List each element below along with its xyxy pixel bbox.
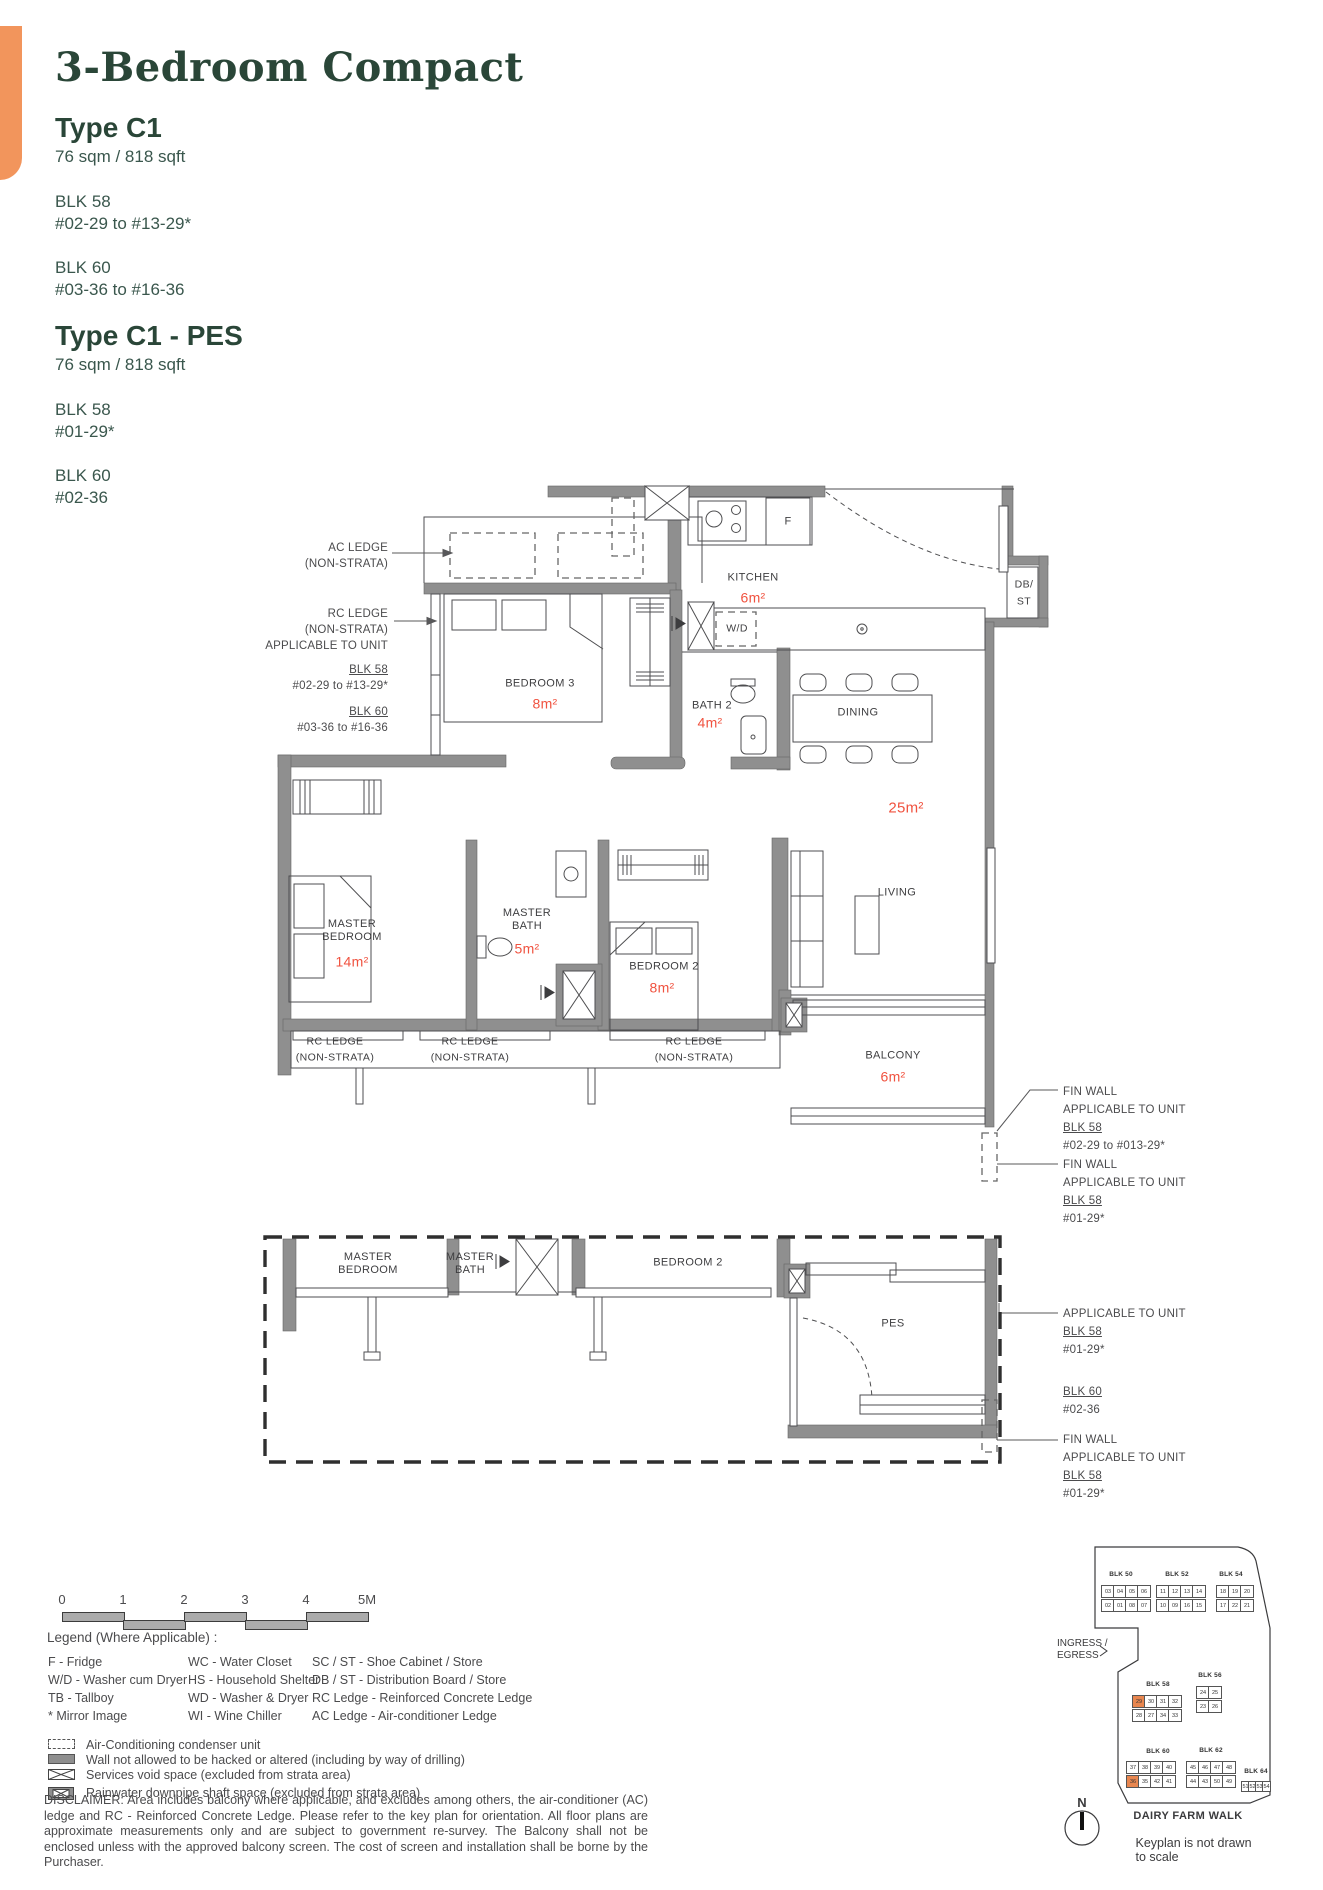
scale-tick-1: 1: [119, 1592, 126, 1607]
room-label-bath2: BATH 2: [692, 700, 732, 713]
dbst-label-2: ST: [1017, 596, 1031, 609]
scale-tick-4: 4: [302, 1592, 309, 1607]
keyplan-unit-41: 41: [1162, 1775, 1176, 1788]
room-area-kitchen: 6m²: [740, 592, 765, 605]
fin-wall-annotation-1: FIN WALL APPLICABLE TO UNIT BLK 58 #02-2…: [1063, 1083, 1186, 1155]
keyplan-unit-40: 40: [1162, 1761, 1176, 1774]
rc-ledge-annotation: RC LEDGE (NON-STRATA) APPLICABLE TO UNIT…: [208, 606, 388, 736]
ac-ledge-line2: (NON-STRATA): [238, 556, 388, 572]
scale-tick-5M: 5M: [358, 1592, 376, 1607]
keyplan-block-label-blk-58: BLK 58: [1146, 1681, 1170, 1688]
keyplan-block-label-blk-56: BLK 56: [1198, 1672, 1222, 1679]
pes-applicable-annotation: APPLICABLE TO UNIT BLK 58 #01-29* BLK 60…: [1063, 1305, 1186, 1419]
scale-tick-2: 2: [180, 1592, 187, 1607]
rc-ledge-band-2-line2: (NON-STRATA): [431, 1052, 510, 1065]
room-label-master-bedroom: MASTER BEDROOM: [309, 918, 395, 944]
room-label-bedroom3: BEDROOM 3: [505, 678, 575, 691]
room-label-dining: DINING: [838, 707, 879, 720]
scale-segment: [306, 1612, 369, 1622]
services-void-icon: [48, 1769, 76, 1780]
scale-segment: [184, 1612, 247, 1622]
keyplan-note: Keyplan is not drawn to scale: [1136, 1836, 1261, 1864]
wd-label: W/D: [726, 623, 748, 636]
keyplan-road-label: DAIRY FARM WALK: [1133, 1810, 1242, 1822]
keyplan-unit-25: 25: [1208, 1686, 1222, 1699]
compass-north-label: N: [1077, 1795, 1086, 1810]
room-area-living: 25m²: [888, 802, 923, 815]
room-area-bedroom2: 8m²: [649, 982, 674, 995]
rc-ledge-band-3-line1: RC LEDGE: [666, 1036, 723, 1049]
keyplan-block-label-blk-62: BLK 62: [1199, 1747, 1223, 1754]
floorplan-page: 3-Bedroom Compact Type C1 76 sqm / 818 s…: [0, 0, 1323, 1890]
pes-room-label-master-bath: MASTER BATH: [440, 1251, 500, 1277]
room-area-master-bedroom: 14m²: [335, 956, 368, 969]
room-area-balcony: 6m²: [880, 1071, 905, 1084]
scale-tick-3: 3: [241, 1592, 248, 1607]
keyplan-unit-48: 48: [1222, 1761, 1236, 1774]
keyplan-unit-21: 21: [1240, 1599, 1254, 1612]
scale-segment: [245, 1620, 308, 1630]
legend-title: Legend (Where Applicable) :: [47, 1630, 217, 1645]
keyplan-block-label-blk-60: BLK 60: [1146, 1748, 1170, 1755]
keyplan-unit-14: 14: [1192, 1585, 1206, 1598]
room-area-bath2: 4m²: [697, 717, 722, 730]
scale-segment: [123, 1620, 186, 1630]
fin-wall-annotation-3: FIN WALL APPLICABLE TO UNIT BLK 58 #01-2…: [1063, 1431, 1186, 1503]
rc-ledge-band-2-line1: RC LEDGE: [442, 1036, 499, 1049]
room-label-bedroom2: BEDROOM 2: [629, 961, 699, 974]
keyplan-unit-07: 07: [1137, 1599, 1151, 1612]
keyplan-unit-33: 33: [1168, 1709, 1182, 1722]
keyplan-unit-49: 49: [1222, 1775, 1236, 1788]
keyplan-block-label-blk-50: BLK 50: [1109, 1571, 1133, 1578]
keyplan-ingress-label: INGRESS / EGRESS: [1057, 1638, 1108, 1662]
rc-ledge-band-1-line2: (NON-STRATA): [296, 1052, 375, 1065]
scale-segment: [62, 1612, 125, 1622]
keyplan-block-label-blk-64: BLK 64: [1244, 1768, 1268, 1775]
disclaimer-text: DISCLAIMER: Area includes balcony where …: [44, 1793, 648, 1871]
keyplan-unit-15: 15: [1192, 1599, 1206, 1612]
keyplan-unit-26: 26: [1208, 1700, 1222, 1713]
ac-ledge-line1: AC LEDGE: [238, 540, 388, 556]
room-label-living: LIVING: [878, 887, 916, 900]
restricted-wall-icon: [48, 1754, 75, 1764]
legend-column-3: SC / ST - Shoe Cabinet / Store DB / ST -…: [312, 1653, 532, 1725]
ac-ledge-annotation: AC LEDGE (NON-STRATA): [238, 540, 388, 572]
legend-column-2: WC - Water Closet HS - Household Shelter…: [188, 1653, 319, 1725]
room-label-master-bath: MASTER BATH: [497, 907, 557, 933]
fin-wall-annotation-2: FIN WALL APPLICABLE TO UNIT BLK 58 #01-2…: [1063, 1156, 1186, 1228]
keyplan-unit-32: 32: [1168, 1695, 1182, 1708]
pes-room-label-bedroom2: BEDROOM 2: [653, 1257, 723, 1270]
room-area-master-bath: 5m²: [514, 943, 539, 956]
pes-room-label-master-bedroom: MASTER BEDROOM: [321, 1251, 416, 1277]
dbst-label-1: DB/: [1015, 579, 1034, 592]
room-area-bedroom3: 8m²: [532, 698, 557, 711]
rc-ledge-band-1-line1: RC LEDGE: [307, 1036, 364, 1049]
ac-condenser-icon: [48, 1739, 75, 1749]
rc-ledge-band-3-line2: (NON-STRATA): [655, 1052, 734, 1065]
keyplan-unit-06: 06: [1137, 1585, 1151, 1598]
keyplan-block-label-blk-52: BLK 52: [1165, 1571, 1189, 1578]
keyplan-block-label-blk-54: BLK 54: [1219, 1571, 1243, 1578]
keyplan-unit-20: 20: [1240, 1585, 1254, 1598]
keyplan-unit-54: 54: [1262, 1781, 1271, 1792]
fridge-label: F: [784, 516, 791, 529]
room-label-balcony: BALCONY: [865, 1050, 920, 1063]
legend-column-1: F - Fridge W/D - Washer cum Dryer TB - T…: [48, 1653, 187, 1725]
pes-room-label-pes: PES: [881, 1318, 904, 1331]
scale-tick-0: 0: [58, 1592, 65, 1607]
room-label-kitchen: KITCHEN: [727, 572, 778, 585]
